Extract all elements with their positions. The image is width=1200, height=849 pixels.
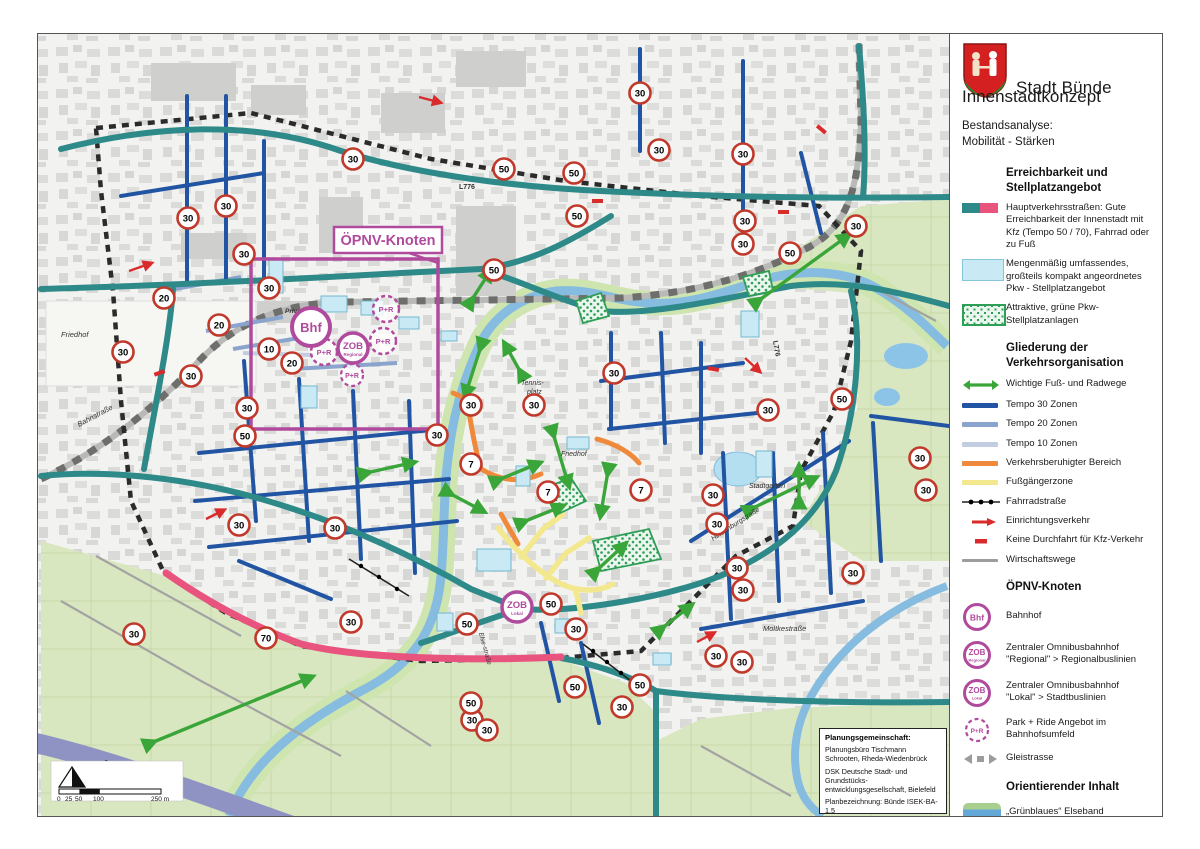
svg-text:30: 30 — [242, 404, 253, 415]
stadtgarten-label: Stadtgarten — [749, 483, 785, 490]
legend-item-tempo30: Tempo 30 Zonen — [1006, 399, 1151, 411]
svg-text:50: 50 — [572, 212, 583, 223]
bhf-marker: Bhf — [292, 308, 330, 346]
svg-text:ZOB: ZOB — [343, 341, 363, 352]
legend-item-bahnhof: Bahnhof — [1006, 610, 1151, 622]
svg-text:50: 50 — [635, 681, 646, 692]
svg-text:Bhf: Bhf — [970, 612, 984, 622]
page-subtitle: Innenstadtkonzept — [962, 87, 1152, 107]
svg-text:30: 30 — [221, 202, 232, 213]
legend-item-no-through: Keine Durchfahrt für Kfz-Verkehr — [1006, 534, 1151, 546]
info-date: Stand: 29.09.2017 — [825, 815, 941, 816]
legend-section-traffic-heading: Gliederung der Verkehrsorganisation — [1006, 341, 1146, 371]
zob-lokal-marker: ZOB Lokal — [502, 592, 532, 622]
legend-item-tempo20: Tempo 20 Zonen — [1006, 418, 1151, 430]
svg-text:30: 30 — [118, 348, 129, 359]
svg-text:50: 50 — [466, 699, 477, 710]
svg-text:30: 30 — [482, 726, 493, 737]
svg-text:30: 30 — [234, 521, 245, 532]
svg-text:30: 30 — [186, 372, 197, 383]
svg-text:7: 7 — [545, 488, 550, 499]
svg-text:30: 30 — [529, 401, 540, 412]
svg-text:10: 10 — [264, 345, 275, 356]
svg-text:7: 7 — [468, 460, 473, 471]
svg-text:30: 30 — [712, 520, 723, 531]
farm-track-swatch — [962, 559, 998, 562]
svg-text:30: 30 — [264, 284, 275, 295]
svg-text:50: 50 — [570, 683, 581, 694]
svg-text:50: 50 — [499, 165, 510, 176]
svg-text:30: 30 — [348, 155, 359, 166]
analysis-line-1: Bestandsanalyse: — [962, 119, 1152, 135]
svg-text:0: 0 — [57, 796, 61, 803]
legend-item-foot-bike: Wichtige Fuß- und Radwege — [1006, 378, 1151, 390]
svg-text:Bhf: Bhf — [300, 320, 322, 335]
svg-text:30: 30 — [609, 369, 620, 380]
svg-text:30: 30 — [239, 250, 250, 261]
cemetery-label-west: Friedhof — [61, 330, 89, 339]
legend-panel: Stadt Bünde Innenstadtkonzept Bestandsan… — [949, 34, 1162, 816]
svg-text:30: 30 — [571, 625, 582, 636]
plan-info-box: Planungsgemeinschaft: Planungsbüro Tisch… — [819, 728, 947, 814]
svg-text:20: 20 — [159, 294, 170, 305]
pr-marker: P+R — [376, 337, 391, 346]
calmed-swatch — [962, 461, 998, 466]
scale-bar: 0 25 50 100 250 m — [51, 761, 183, 803]
svg-text:30: 30 — [635, 89, 646, 100]
svg-text:30: 30 — [737, 658, 748, 669]
svg-text:30: 30 — [467, 716, 478, 727]
park-ride-icon: P+R — [962, 716, 994, 744]
svg-text:50: 50 — [546, 600, 557, 611]
foot-bike-arrow-icon — [962, 378, 1000, 392]
legend-section-opnv-heading: ÖPNV-Knoten — [1006, 580, 1146, 595]
legend-item-bicycle-street: Fahrradstraße — [1006, 496, 1151, 508]
svg-text:30: 30 — [851, 222, 862, 233]
plan-sheet: A 30 — [37, 33, 1163, 817]
cemetery-area — [46, 301, 256, 386]
pr-marker: P+R — [345, 373, 359, 380]
oneway-arrow-icon — [962, 517, 1000, 527]
svg-text:20: 20 — [287, 359, 298, 370]
svg-text:50: 50 — [489, 266, 500, 277]
svg-text:30: 30 — [346, 618, 357, 629]
legend-item-park-ride: Park + Ride Angebot im Bahnhofsumfeld — [1006, 717, 1151, 742]
info-planner-2: DSK Deutsche Stadt- und Grundstücks­entw… — [825, 767, 941, 794]
legend-item-pedestrian: Fußgängerzone — [1006, 476, 1151, 488]
zob-lokal-icon: ZOBLokal — [962, 678, 994, 708]
svg-text:30: 30 — [708, 491, 719, 502]
main-road-swatch — [962, 203, 998, 213]
svg-text:100: 100 — [93, 796, 104, 803]
svg-text:ZOB: ZOB — [507, 600, 527, 611]
cemetery-label-center: Friedhof — [561, 451, 588, 458]
moltkestrasse-label: Moltkestraße — [763, 624, 806, 633]
legend-item-parking-supply: Mengenmäßig umfassendes, großteils kompa… — [1006, 258, 1151, 295]
pr-marker: P+R — [317, 348, 332, 357]
svg-text:50: 50 — [785, 249, 796, 260]
svg-text:30: 30 — [738, 586, 749, 597]
svg-text:30: 30 — [732, 564, 743, 575]
city-map: A 30 — [38, 34, 949, 816]
pr-marker: P+R — [379, 305, 394, 314]
parking-blue-swatch — [962, 259, 1004, 281]
legend-item-elseband: „Grünblaues“ Elseband — [1006, 806, 1151, 816]
map-panel: A 30 — [38, 34, 949, 816]
legend-item-green-parking: Attraktive, grüne Pkw-Stellplatzanlagen — [1006, 302, 1151, 327]
legend-item-calmed: Verkehrsberuhigter Bereich — [1006, 457, 1151, 469]
svg-text:30: 30 — [183, 214, 194, 225]
svg-text:250 m: 250 m — [151, 796, 169, 803]
svg-text:30: 30 — [711, 652, 722, 663]
svg-text:20: 20 — [214, 321, 225, 332]
info-planner-1: Planungsbüro Tischmann Schrooten, Rheda-… — [825, 745, 941, 763]
svg-text:30: 30 — [848, 569, 859, 580]
info-plan-id: Planbezeichnung: Bünde ISEK-BA-1.5 — [825, 797, 941, 815]
legend-item-zob-lokal: Zentraler Omnibusbahnhof "Lokal" > Stadt… — [1006, 680, 1151, 705]
svg-text:30: 30 — [740, 217, 751, 228]
tempo30-swatch — [962, 403, 998, 408]
svg-text:50: 50 — [240, 432, 251, 443]
bhf-icon: Bhf — [962, 602, 994, 632]
tempo20-swatch — [962, 422, 998, 427]
parking-green-swatch — [962, 304, 1006, 326]
svg-text:30: 30 — [617, 703, 628, 714]
zob-regional-icon: ZOBRegional — [962, 640, 994, 670]
svg-text:50: 50 — [837, 395, 848, 406]
svg-text:ZOB: ZOB — [969, 648, 986, 657]
svg-text:ZOB: ZOB — [969, 686, 986, 695]
svg-text:P+R: P+R — [971, 728, 984, 735]
gleistrasse-icon — [962, 752, 1000, 766]
svg-text:Lokal: Lokal — [972, 695, 982, 700]
svg-text:70: 70 — [261, 634, 272, 645]
opnv-knoten-label: ÖPNV-Knoten — [340, 232, 435, 249]
svg-text:30: 30 — [738, 240, 749, 251]
svg-text:50: 50 — [569, 169, 580, 180]
legend-item-farm-tracks: Wirtschaftswege — [1006, 554, 1151, 566]
svg-text:30: 30 — [466, 401, 477, 412]
svg-text:50: 50 — [75, 796, 83, 803]
no-through-icon — [962, 537, 1000, 545]
zob-regional-marker: ZOB Regional — [338, 333, 368, 363]
svg-text:30: 30 — [654, 146, 665, 157]
tempo10-swatch — [962, 442, 998, 447]
analysis-line-2: Mobilität - Stärken — [962, 135, 1152, 151]
svg-text:30: 30 — [915, 454, 926, 465]
bicycle-street-icon — [962, 498, 1000, 506]
svg-text:25: 25 — [65, 796, 73, 803]
svg-text:50: 50 — [462, 620, 473, 631]
elseband-icon — [962, 802, 1002, 816]
svg-text:30: 30 — [129, 630, 140, 641]
legend-section-parking-heading: Erreichbarkeit und Stellplatzangebot — [1006, 166, 1146, 196]
l776-label: L776 — [459, 184, 475, 191]
legend-item-zob-regional: Zentraler Omnibusbahnhof "Regional" > Re… — [1006, 642, 1151, 667]
tennisplatz-label: Tennis- — [521, 380, 544, 387]
svg-text:30: 30 — [921, 486, 932, 497]
legend-section-orientation-heading: Orientierender Inhalt — [1006, 780, 1146, 795]
svg-text:30: 30 — [763, 406, 774, 417]
info-title: Planungsgemeinschaft: — [825, 733, 941, 742]
legend-item-tempo10: Tempo 10 Zonen — [1006, 438, 1151, 450]
svg-text:7: 7 — [638, 486, 643, 497]
legend-item-oneway: Einrichtungsverkehr — [1006, 515, 1151, 527]
svg-text:Regional: Regional — [969, 657, 986, 662]
svg-text:Lokal: Lokal — [511, 611, 523, 616]
legend-item-main-roads: Hauptverkehrsstraßen: Gute Erreichbarkei… — [1006, 202, 1151, 251]
svg-text:30: 30 — [432, 431, 443, 442]
svg-text:30: 30 — [738, 150, 749, 161]
legend-item-gleistrasse: Gleistrasse — [1006, 752, 1151, 764]
svg-text:30: 30 — [330, 524, 341, 535]
svg-text:Regional: Regional — [343, 352, 362, 357]
pedestrian-swatch — [962, 480, 998, 485]
